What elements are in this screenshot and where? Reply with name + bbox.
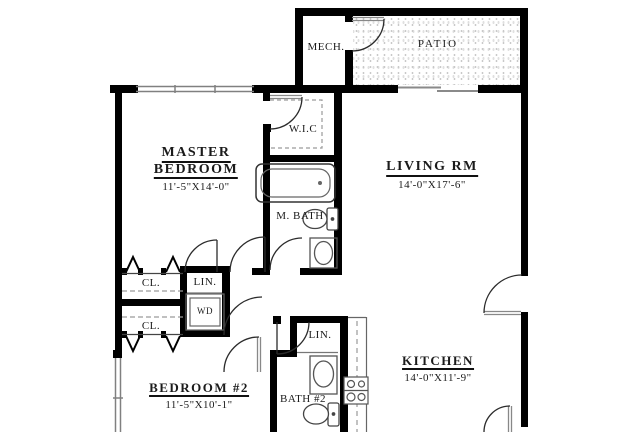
master-bedroom-line2: BEDROOM [154, 163, 238, 180]
room-label-closet-top: CL. [142, 277, 160, 289]
master-bedroom-line1: MASTER [162, 146, 231, 163]
room-label-closet-bottom: CL. [142, 320, 160, 332]
sliding-door-icon [398, 88, 478, 92]
room-label-master-bedroom: MASTER BEDROOM 11'-5"X14'-0" [154, 146, 238, 193]
room-label-wd: WD [197, 306, 213, 316]
bifold-door-icon [126, 257, 180, 351]
kitchen-counter-icon [348, 317, 367, 432]
kitchen-title: KITCHEN [402, 354, 474, 370]
sink-icon [310, 238, 337, 268]
room-label-linen-bath2: LIN. [308, 329, 331, 341]
kitchen-dims: 14'-0"X11'-9" [404, 372, 471, 384]
room-label-kitchen: KITCHEN 14'-0"X11'-9" [402, 354, 474, 384]
floorplan-canvas: MECH. PATIO W.I.C MASTER BEDROOM 11'-5"X… [0, 0, 640, 432]
room-label-m-bath: M. BATH [276, 210, 324, 222]
living-rm-dims: 14'-0"X17'-6" [398, 179, 466, 191]
bathtub-icon [256, 164, 335, 202]
room-label-living-rm: LIVING RM 14'-0"X17'-6" [386, 160, 478, 191]
cooktop-icon [344, 377, 368, 404]
living-rm-title: LIVING RM [386, 160, 478, 177]
master-bedroom-dims: 11'-5"X14'-0" [162, 181, 229, 193]
room-label-mech: MECH. [307, 41, 344, 53]
room-label-bath2: BATH #2 [280, 393, 326, 405]
bedroom2-title: BEDROOM #2 [149, 381, 249, 397]
room-label-linen-hall: LIN. [193, 276, 216, 288]
sink-icon [310, 356, 337, 394]
room-label-wic: W.I.C [289, 123, 317, 135]
toilet-icon [304, 403, 340, 426]
window [136, 85, 254, 93]
bedroom2-dims: 11'-5"X10'-1" [165, 399, 232, 411]
window [113, 358, 123, 432]
room-label-bedroom2: BEDROOM #2 11'-5"X10'-1" [149, 381, 249, 411]
room-label-patio: PATIO [418, 38, 458, 50]
